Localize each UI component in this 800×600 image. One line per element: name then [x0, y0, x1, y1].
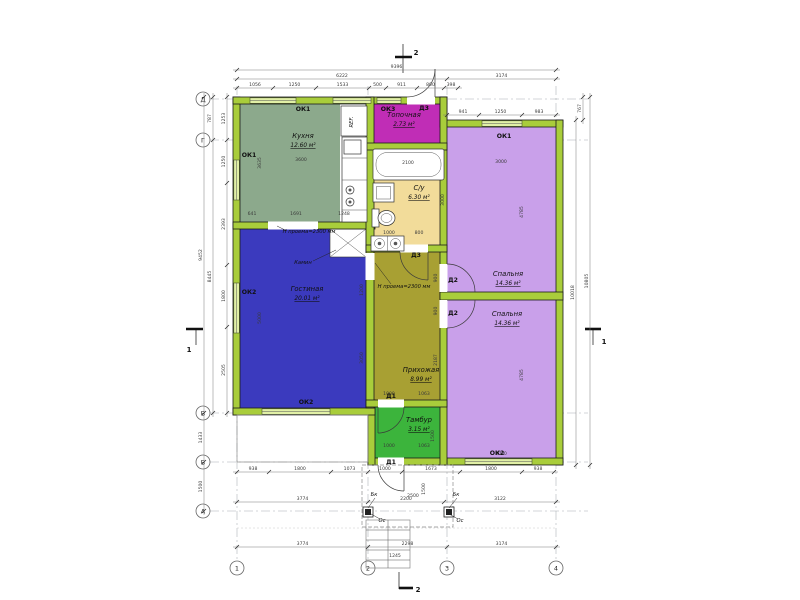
dim-label: 3635	[257, 157, 263, 169]
dim-label: 1063	[418, 443, 430, 449]
feature-mark-label: ОК1	[242, 152, 257, 159]
section-number-right: 1	[602, 338, 607, 346]
room-area-label: 20.01 м²	[294, 295, 320, 302]
dim-label: 3774	[297, 496, 309, 502]
feature-mark-label: Д2	[448, 310, 458, 317]
annotation-label: Камин	[294, 260, 312, 266]
dim-label: 1250	[221, 156, 227, 168]
feature-mark-label: ОК1	[296, 106, 311, 113]
dim-label: 9452	[198, 249, 204, 261]
section-number-top: 2	[414, 49, 419, 57]
room-area-label: 14.36 м²	[495, 280, 521, 287]
dim-label: 2187	[433, 354, 439, 366]
annotation-label: Бк	[371, 492, 379, 498]
dim-label: 1533	[337, 82, 349, 88]
annotation-label: Ос	[457, 518, 464, 524]
axis-bubble-label: 2	[366, 564, 370, 572]
dim-label: 1250	[289, 82, 301, 88]
dim-label: 500	[373, 82, 382, 88]
dim-label: 900	[433, 274, 439, 283]
room-area-label: 8.99 м²	[410, 376, 432, 383]
dim-label: 6222	[336, 73, 348, 79]
dim-label: 641	[248, 211, 257, 217]
dim-label: 938	[534, 466, 543, 472]
axis-bubble-label: В	[201, 409, 205, 417]
dim-label: 938	[249, 466, 258, 472]
dim-label: 1000	[383, 443, 395, 449]
dim-label: 767	[577, 104, 583, 113]
wall-exterior-left	[233, 97, 240, 415]
room-name-label: Спальня	[492, 310, 522, 318]
dim-label: 10805	[584, 274, 590, 289]
dim-label: 1200	[359, 284, 365, 296]
dim-label: 9396	[391, 64, 403, 70]
dim-label: 2500	[407, 493, 419, 499]
axis-bubble-label: 1	[235, 564, 239, 572]
dim-label: 2505	[221, 364, 227, 376]
feature-mark-label: ОК2	[299, 399, 314, 406]
dim-label: 8445	[207, 271, 213, 283]
dim-label: 1500	[421, 483, 427, 495]
room-name-label: Гостиная	[291, 285, 324, 293]
dim-label: 3122	[494, 496, 506, 502]
room-name-label: Спальня	[493, 270, 523, 278]
dim-label: 1000	[383, 230, 395, 236]
dim-label: 4785	[519, 369, 525, 381]
dim-label: 1800	[485, 466, 497, 472]
dim-label: 3000	[440, 194, 446, 206]
dim-label: 941	[459, 109, 468, 115]
annotation-label: Ос	[379, 518, 386, 524]
washer-drum-center	[394, 242, 398, 246]
dim-label: 1253	[221, 113, 227, 125]
axis-bubble-label: 3	[445, 564, 449, 572]
dim-label: 2100	[402, 160, 414, 166]
axis-bubble-label: Б	[201, 458, 205, 466]
room-name-label: Кухня	[292, 132, 313, 140]
dim-label: 1500	[198, 481, 204, 493]
dim-label: 1500	[430, 430, 436, 442]
annotation-label: REF.	[349, 117, 355, 128]
feature-mark-label: Д1	[386, 459, 396, 466]
dim-label: 1433	[198, 432, 204, 444]
opening-door-bedroom-2	[440, 300, 448, 328]
dim-label: 2393	[221, 218, 227, 230]
room-fill-bedroom-1	[447, 127, 556, 292]
room-area-label: 3.15 м²	[408, 426, 430, 433]
porch-column-core	[365, 509, 371, 515]
stove-burner-center	[349, 201, 352, 204]
room-name-label: Прихожая	[403, 366, 439, 374]
dim-label: 1073	[344, 466, 356, 472]
dim-label: 3050	[359, 352, 365, 364]
dim-label: 1250	[495, 109, 507, 115]
dim-label: 3774	[297, 541, 309, 547]
room-area-label: 14.36 м²	[494, 320, 520, 327]
feature-mark-label: Д3	[419, 105, 429, 112]
dim-label: 983	[535, 109, 544, 115]
room-area-label: 6.30 м²	[408, 194, 430, 201]
toilet-bowl	[378, 211, 395, 226]
dim-label: 10018	[570, 285, 576, 300]
feature-mark-label: Д1	[386, 393, 396, 400]
feature-mark-label: ОК2	[490, 450, 505, 457]
dim-label: 800	[426, 82, 435, 88]
feature-mark-label: Д3	[411, 252, 421, 259]
room-name-label: С/у	[413, 184, 425, 192]
stove-burner-center	[349, 189, 352, 192]
section-number-left: 1	[187, 346, 192, 354]
dim-label: 3600	[295, 157, 307, 163]
dim-label: 1673	[425, 466, 437, 472]
dim-label: 1056	[249, 82, 261, 88]
feature-mark-label: ОК1	[497, 133, 512, 140]
annotation-label: Бк	[453, 492, 461, 498]
floor-plan-drawing: 1234АБВГД	[0, 0, 800, 600]
wall-bedroom-divider	[440, 292, 563, 300]
opening-living-hall	[366, 253, 375, 280]
room-area-label: 2.73 м²	[393, 121, 415, 128]
opening-door-boiler-exterior	[407, 97, 435, 105]
dim-label: 1000	[379, 466, 391, 472]
annotation-label: Н проема=2300 мм	[378, 284, 431, 290]
dim-label: 1691	[290, 211, 302, 217]
axis-bubble-label: Г	[201, 136, 205, 144]
dim-label: 1800	[294, 466, 306, 472]
annotation-label: Н проема=2300 мм	[283, 229, 336, 235]
dim-label: 3174	[496, 541, 508, 547]
dim-label: 1245	[389, 553, 401, 559]
room-name-label: Тамбур	[406, 416, 432, 424]
room-area-label: 12.60 м²	[290, 142, 316, 149]
section-number-bottom: 2	[416, 586, 421, 594]
feature-mark-label: Д2	[448, 277, 458, 284]
feature-mark-label: ОК3	[381, 106, 396, 113]
kitchen-sink	[344, 140, 361, 154]
dim-label: 1248	[338, 211, 350, 217]
dim-label: 4785	[519, 206, 525, 218]
dim-label: 2298	[402, 541, 414, 547]
opening-door-bedroom-1	[440, 264, 448, 292]
feature-mark-label: ОК2	[242, 289, 257, 296]
dim-label: 3174	[496, 73, 508, 79]
drawing-canvas: 1234АБВГД	[0, 0, 800, 600]
dim-label: 911	[397, 82, 406, 88]
dim-label: 1800	[221, 290, 227, 302]
opening-door-hall-tambour	[378, 400, 404, 408]
dim-label: 5000	[257, 312, 263, 324]
washer-drum-center	[378, 242, 382, 246]
dim-label: 787	[207, 114, 213, 123]
dim-label: 398	[447, 82, 456, 88]
dim-label: 1063	[418, 391, 430, 397]
axis-bubble-label: 4	[554, 564, 558, 572]
dim-label: 800	[415, 230, 424, 236]
dim-label: 3000	[495, 159, 507, 165]
dim-label: 900	[433, 307, 439, 316]
